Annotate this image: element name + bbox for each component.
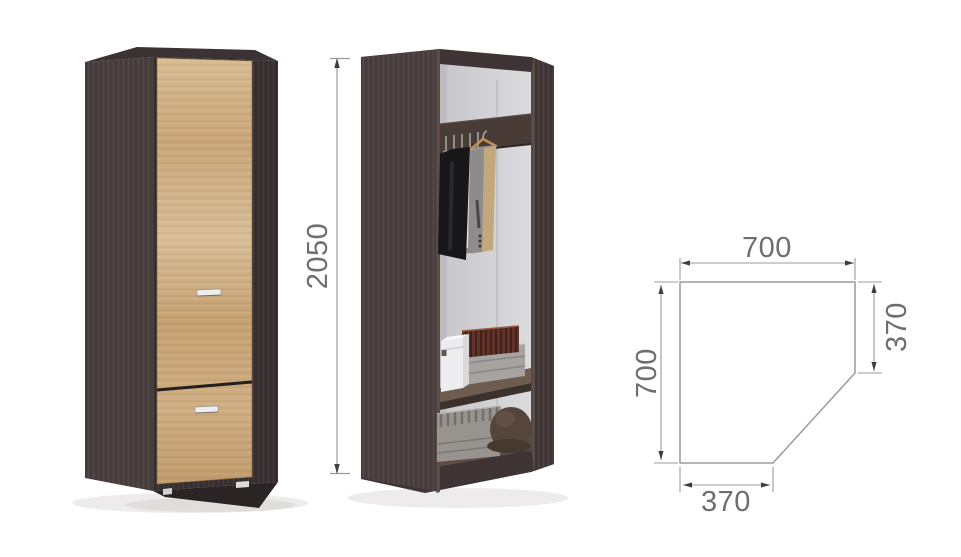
corner-wardrobe-product-image: 2050 xyxy=(0,0,961,557)
black-jacket xyxy=(438,147,470,260)
closed-wardrobe-illustration xyxy=(72,47,308,513)
arrow-right xyxy=(845,260,854,265)
gray-garment-pocket xyxy=(477,200,479,228)
plan-left-dimension: 700 xyxy=(631,282,678,463)
open-wardrobe-left-panel-grain xyxy=(361,49,440,492)
garment-button xyxy=(479,235,482,238)
hat-brim xyxy=(487,439,531,453)
closed-wardrobe-foot-left xyxy=(163,488,172,495)
closed-wardrobe-foot-right xyxy=(236,481,249,488)
right-panel-inner-edge xyxy=(531,58,535,470)
plan-bottom-dimension: 370 xyxy=(680,467,773,518)
open-wardrobe-illustration xyxy=(348,49,568,508)
arrow-left xyxy=(683,482,692,487)
plan-right-depth-label: 370 xyxy=(881,302,913,352)
plan-left-side-label: 700 xyxy=(631,348,663,398)
arrow-down xyxy=(658,451,663,460)
arrow-right xyxy=(761,482,770,487)
plan-top-width-label: 700 xyxy=(742,232,792,264)
arrow-up xyxy=(871,284,876,293)
drawer-handle xyxy=(195,406,218,413)
height-dimension-label: 2050 xyxy=(302,223,334,290)
closed-wardrobe-oak-door-grain xyxy=(157,58,252,484)
plan-right-dimension: 370 xyxy=(858,282,913,373)
white-box-clasp xyxy=(442,350,447,356)
plan-outline xyxy=(680,282,855,463)
white-box-side xyxy=(463,334,469,388)
hanging-clothes xyxy=(438,139,496,260)
arrow-up xyxy=(658,285,663,294)
hat-highlight xyxy=(495,411,515,427)
arrow-down xyxy=(871,362,876,371)
plan-top-dimension: 700 xyxy=(680,232,855,280)
closed-wardrobe-left-panel-grain xyxy=(85,57,153,491)
white-storage-box xyxy=(441,334,469,392)
jacket-sheen xyxy=(450,162,452,250)
height-dimension: 2050 xyxy=(302,58,350,474)
plan-bottom-width-label: 370 xyxy=(701,486,751,518)
height-dim-arrow-down xyxy=(334,464,339,474)
height-dim-arrow-up xyxy=(334,58,339,68)
garment-button xyxy=(479,240,482,243)
garment-button xyxy=(479,245,482,248)
wardrobe-diagram-canvas: 2050 xyxy=(0,0,961,557)
door-handle xyxy=(197,289,221,296)
arrow-left xyxy=(681,260,690,265)
plan-diagram: 700 370 700 370 xyxy=(631,232,913,518)
open-wardrobe-shadow xyxy=(348,488,568,508)
